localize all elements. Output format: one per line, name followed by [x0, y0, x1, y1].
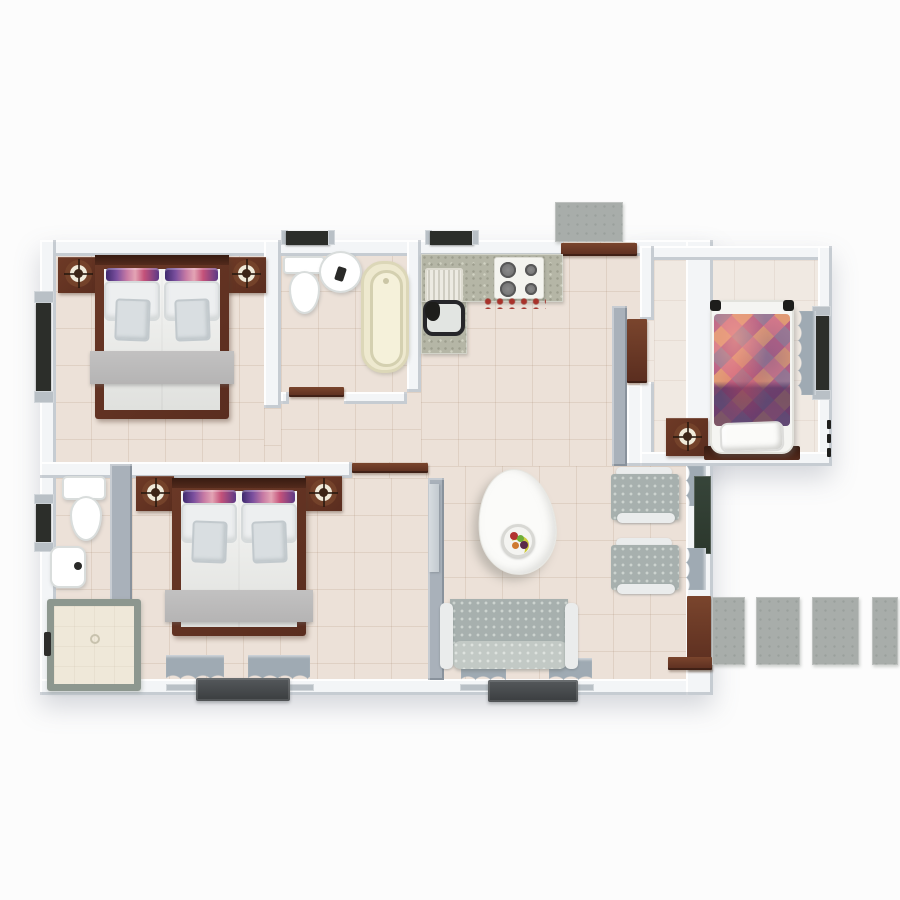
fruit-plate — [501, 524, 535, 558]
bedroom2-lamp-right — [310, 479, 337, 506]
annex-door-leaf — [627, 319, 647, 383]
wall-bathroom1-bottom-a — [281, 392, 289, 404]
bathroom1-bathtub — [361, 261, 409, 373]
annex-lamp — [674, 423, 701, 450]
living-slider-curtain-bottom — [685, 548, 706, 590]
kitchen-hob — [494, 257, 544, 299]
sofa-body — [450, 599, 568, 646]
bedroom2-curtain-right — [248, 655, 310, 680]
annex-wall-left — [640, 246, 654, 320]
bedroom1-window-cap-bottom — [34, 391, 54, 403]
bedroom1-accent-pillow-right — [165, 268, 218, 281]
bedroom2-lamp-left — [142, 479, 169, 506]
sofa-seat-roll — [452, 641, 568, 669]
hob-burner-2 — [500, 281, 516, 297]
bathtub-drain — [383, 278, 389, 284]
kitchen-red-accessories — [482, 297, 546, 309]
bedroom1-lamp-left — [65, 260, 92, 287]
annex-bedpost-left — [710, 300, 721, 311]
shower-floor — [54, 606, 134, 684]
outdoor-unit-1 — [196, 678, 290, 701]
kitchen-window — [430, 231, 474, 245]
outdoor-unit-2 — [488, 680, 578, 702]
bedroom1-cushion-right — [174, 298, 210, 341]
bedroom2-door-open — [352, 463, 428, 473]
bedroom1-window — [36, 303, 51, 391]
sofa-armrest-right — [565, 603, 578, 669]
garden-paver-1 — [712, 597, 745, 665]
kitchen-window-sill-r — [472, 230, 479, 245]
bedroom1-bed — [95, 255, 229, 419]
garden-paver-3 — [812, 597, 859, 665]
bedroom1-door-opening-floor — [264, 408, 281, 462]
annex-window — [816, 316, 829, 390]
bathroom2-sink-faucet — [74, 562, 82, 570]
fruit-plum — [520, 541, 528, 549]
bedroom1-window-cap-top — [34, 291, 54, 303]
annex-wall-top — [640, 246, 832, 260]
fruit-orange — [512, 542, 519, 549]
bedroom1-foot-throw — [90, 351, 234, 384]
hob-burner-1 — [500, 262, 516, 278]
bathroom1-bathtub-basin — [370, 270, 403, 367]
kitchen-sink-faucet — [425, 302, 440, 321]
hob-burner-3 — [525, 264, 537, 276]
floor-plan-canvas — [0, 0, 900, 900]
bedroom2-cushion-left — [191, 520, 227, 563]
annex-diamond-quilt — [714, 314, 790, 426]
bedroom2-curtain-left — [166, 655, 224, 680]
annex-bedpost-right — [783, 300, 794, 311]
entry-concrete-pad — [555, 202, 623, 242]
dimension-tick-2 — [827, 434, 831, 443]
bathroom1-window — [286, 231, 330, 245]
bedroom2-cushion-right — [251, 520, 287, 563]
shower-door-handle — [44, 632, 51, 656]
dimension-tick-3 — [827, 448, 831, 457]
annex-pillow — [719, 421, 784, 453]
shower-drain — [90, 634, 100, 644]
hob-burner-4 — [525, 283, 537, 295]
sofa-armrest-left — [440, 603, 453, 669]
wall-bathroom2-partition — [110, 464, 132, 612]
garden-paver-4 — [872, 597, 898, 665]
bathroom2-shower — [47, 599, 141, 691]
wall-bathroom1-right — [407, 240, 421, 392]
bathroom1-window-sill-r — [328, 230, 335, 245]
kitchen-drainer — [425, 268, 463, 302]
living-slider-glass — [694, 476, 711, 554]
bathroom2-window — [36, 504, 51, 542]
bedroom2-accent-pillow-left — [183, 490, 236, 503]
bedroom1-lamp-right — [233, 260, 260, 287]
annex-window-curtain — [797, 311, 816, 395]
wall-bathroom1-bottom-b — [344, 392, 407, 404]
entrance-door-open — [561, 243, 637, 256]
bedroom2-accent-pillow-right — [242, 490, 295, 503]
garden-paver-2 — [756, 597, 800, 665]
armchair2-front — [617, 584, 675, 594]
wall-kitchen-nook — [612, 306, 627, 466]
bedroom1-accent-pillow-left — [106, 268, 159, 281]
wall-bedroom1-bathroom1 — [264, 240, 281, 408]
bedroom2-foot-throw — [165, 590, 313, 622]
annex-bed — [710, 300, 794, 454]
bedroom2-headboard — [172, 478, 306, 488]
bedroom1-headboard — [95, 255, 229, 265]
armchair1-front — [617, 513, 675, 523]
bedroom2-door-leaf — [429, 484, 439, 572]
bedroom1-cushion-left — [114, 298, 150, 341]
bathroom2-window-cap-top — [34, 494, 54, 504]
garden-door-leaf — [668, 657, 712, 670]
dimension-tick-1 — [827, 420, 831, 429]
bathroom1-door — [289, 387, 344, 397]
